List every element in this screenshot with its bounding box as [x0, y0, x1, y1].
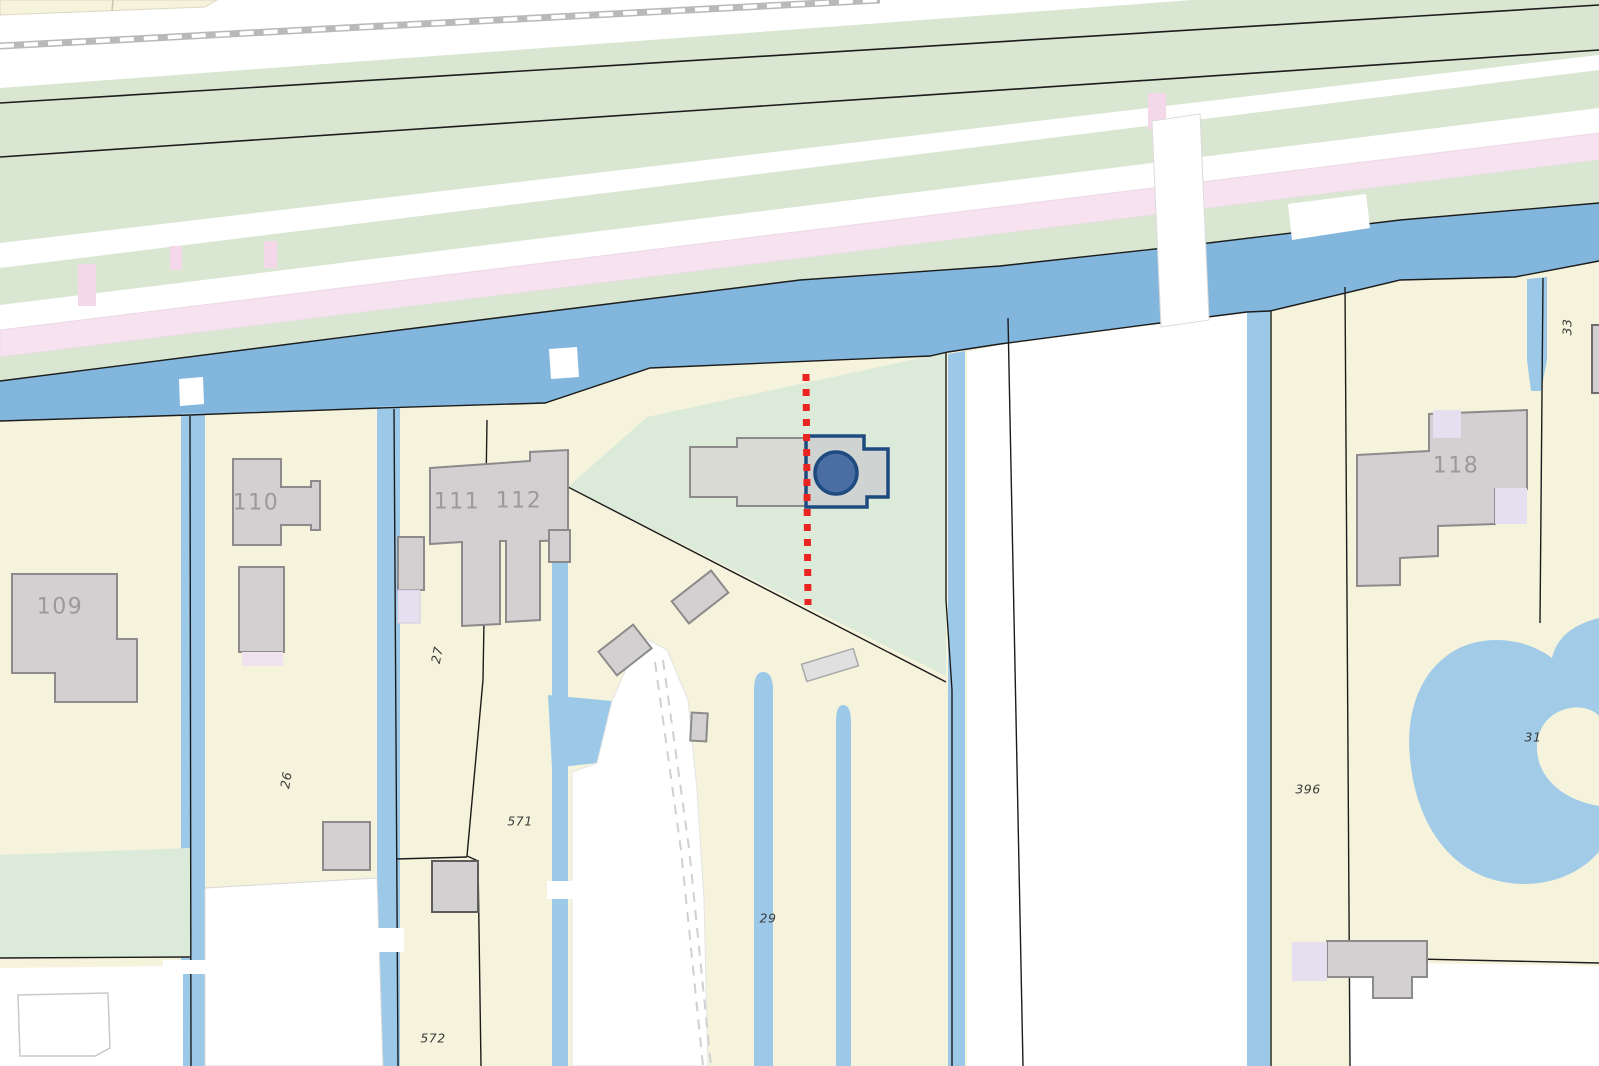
outbuilding — [549, 530, 570, 562]
selected-building-marker[interactable] — [815, 452, 857, 494]
building-edge-clipped — [1592, 325, 1599, 393]
ditch-dam — [163, 960, 210, 974]
annex — [1495, 488, 1527, 524]
outbuilding — [690, 713, 707, 742]
white-yard — [205, 878, 383, 1066]
pink-stub — [170, 246, 182, 270]
ditch — [948, 351, 965, 1066]
outbuilding — [239, 567, 284, 652]
canal-dam — [549, 347, 579, 379]
pink-stub — [78, 264, 96, 306]
outbuilding — [432, 861, 478, 912]
greenhouse-outline — [18, 993, 110, 1056]
canal-dam — [179, 377, 204, 406]
white-parcel — [967, 312, 1247, 1066]
ditch — [1247, 311, 1270, 1066]
pink-stub — [264, 241, 277, 268]
map-canvas[interactable]: 109 110 111 112 118 27 26 571 572 29 396… — [0, 0, 1599, 1066]
canal-bridge — [1152, 114, 1209, 327]
annex — [1292, 942, 1327, 981]
ditch — [754, 672, 773, 1066]
ditch-dam — [547, 881, 573, 899]
ditch — [552, 543, 568, 1066]
annex — [1433, 410, 1461, 438]
map-layers — [0, 0, 1599, 1066]
grass-yard — [0, 848, 190, 958]
ditch-dam — [371, 928, 404, 952]
annex — [242, 652, 283, 666]
annex — [398, 590, 420, 623]
boundary-line — [112, 0, 113, 11]
ditch-stub — [1527, 277, 1547, 391]
outbuilding — [323, 822, 370, 870]
ditch — [836, 705, 851, 1066]
outbuilding — [398, 537, 424, 590]
subject-building-west-part — [690, 438, 806, 506]
